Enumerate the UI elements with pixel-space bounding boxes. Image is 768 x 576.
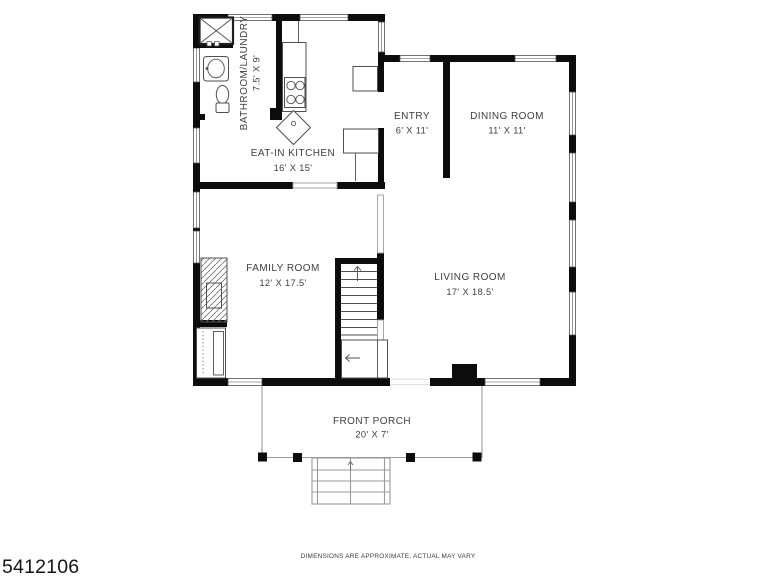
label-family-room-name: FAMILY ROOM	[246, 263, 319, 274]
toilet-icon	[216, 86, 229, 113]
shower-icon	[200, 18, 234, 47]
sink-icon	[204, 57, 229, 82]
label-living-room-name: LIVING ROOM	[434, 272, 506, 283]
interior-walls	[193, 14, 450, 386]
window-icon	[570, 292, 576, 335]
window-icon	[400, 56, 430, 62]
window-icon	[570, 153, 576, 202]
porch-steps-icon	[312, 458, 390, 504]
basement-stair-icon	[342, 340, 388, 378]
label-dining-room-dims: 11' X 11'	[488, 126, 525, 136]
stove-icon	[285, 78, 306, 108]
label-front-porch-dims: 20' X 7'	[355, 430, 388, 440]
photo-id: 5412106	[2, 556, 79, 576]
porch-post	[406, 453, 415, 462]
label-living-room-dims: 17' X 18.5'	[446, 287, 493, 297]
window-icon	[194, 231, 200, 263]
refrigerator-icon	[353, 67, 378, 92]
porch-post	[473, 453, 482, 462]
disclaimer-text: DIMENSIONS ARE APPROXIMATE, ACTUAL MAY V…	[301, 553, 476, 560]
label-bathroom-laundry-dims: 7.5' X 9'	[252, 55, 262, 91]
label-eat-in-kitchen-name: EAT-IN KITCHEN	[251, 148, 335, 159]
bathroom-fixtures	[200, 18, 234, 113]
porch-post	[293, 453, 302, 462]
kitchen-table-icon	[344, 129, 379, 181]
window-icon	[300, 15, 348, 21]
chimney	[452, 364, 477, 380]
label-front-porch-name: FRONT PORCH	[333, 416, 411, 427]
label-entry-dims: 6' X 11'	[396, 126, 429, 136]
label-bathroom-laundry-name: BATHROOM/LAUNDRY	[239, 16, 250, 131]
label-eat-in-kitchen-dims: 16' X 15'	[274, 163, 313, 173]
label-family-room-dims: 12' X 17.5'	[259, 278, 306, 288]
window-icon	[228, 379, 262, 386]
window-icon	[570, 92, 576, 135]
fireplace-icon	[201, 258, 227, 322]
front-door-opening	[390, 379, 430, 385]
front-porch	[258, 386, 482, 504]
window-icon	[194, 192, 200, 228]
exterior-walls	[193, 14, 576, 386]
stair-up-arrow-icon	[354, 267, 361, 282]
window-icon	[485, 379, 540, 386]
window-icon	[570, 220, 576, 267]
staircase-icon	[341, 267, 377, 336]
window-icon	[379, 22, 385, 52]
window-icon	[515, 56, 556, 62]
window-icon	[194, 128, 200, 163]
stair-side-opening	[378, 320, 384, 340]
kitchen-living-opening	[378, 195, 384, 253]
closet-icon	[197, 328, 226, 378]
counter	[283, 21, 299, 43]
floorplan-page: BATHROOM/LAUNDRY 7.5' X 9' EAT-IN KITCHE…	[0, 0, 768, 576]
porch-post	[258, 453, 267, 462]
window-icon	[228, 15, 272, 21]
window-icon	[194, 48, 200, 82]
label-dining-room-name: DINING ROOM	[470, 111, 544, 122]
label-entry-name: ENTRY	[394, 111, 430, 122]
floorplan-drawing: BATHROOM/LAUNDRY 7.5' X 9' EAT-IN KITCHE…	[0, 0, 768, 576]
kitchen-family-opening	[293, 183, 337, 188]
